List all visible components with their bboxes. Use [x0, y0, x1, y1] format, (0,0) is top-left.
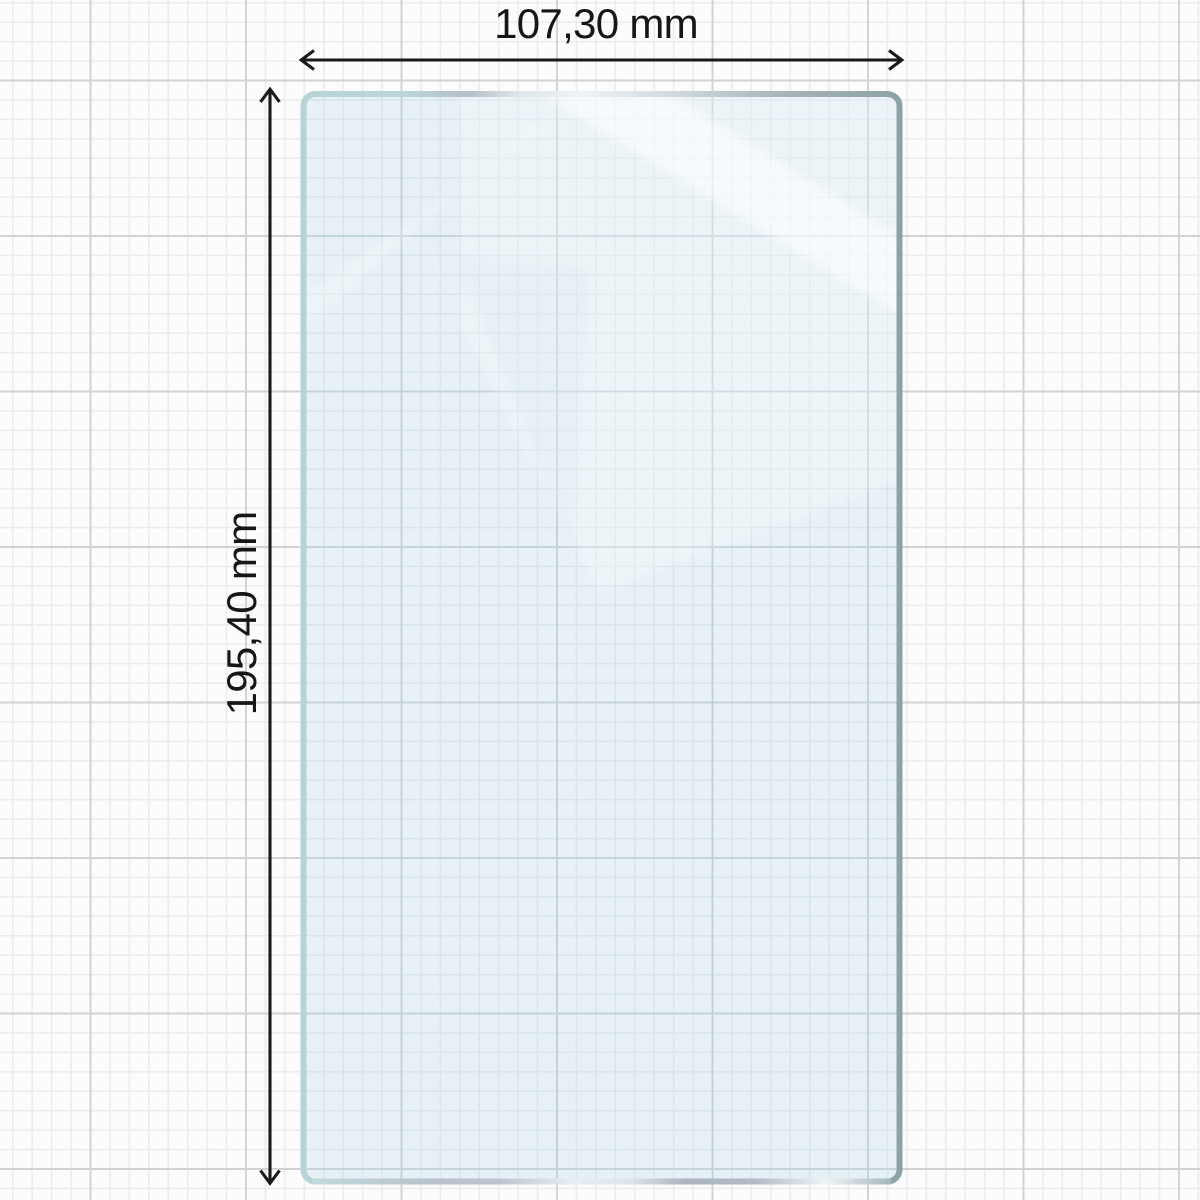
svg-text:107,30 mm: 107,30 mm: [494, 0, 698, 47]
svg-text:195,40 mm: 195,40 mm: [218, 512, 265, 716]
